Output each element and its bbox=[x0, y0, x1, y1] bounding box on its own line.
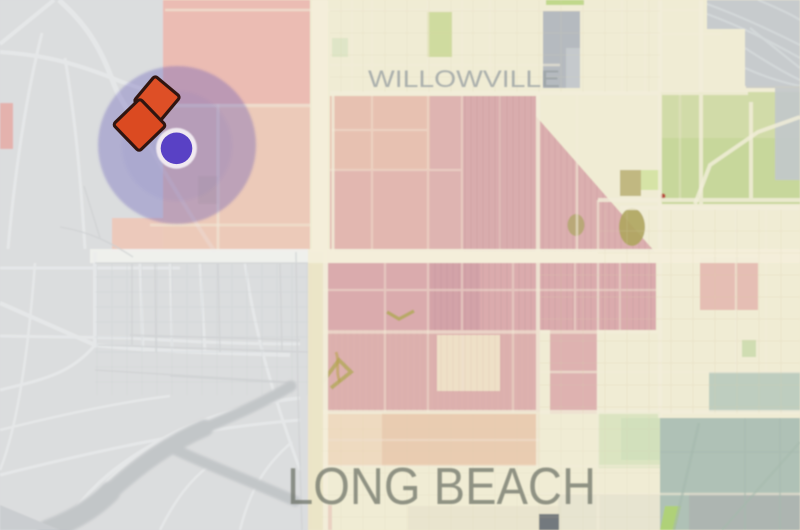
svg-text:WILLOWVILLE: WILLOWVILLE bbox=[368, 66, 560, 93]
svg-text:LONG BEACH: LONG BEACH bbox=[287, 458, 596, 516]
